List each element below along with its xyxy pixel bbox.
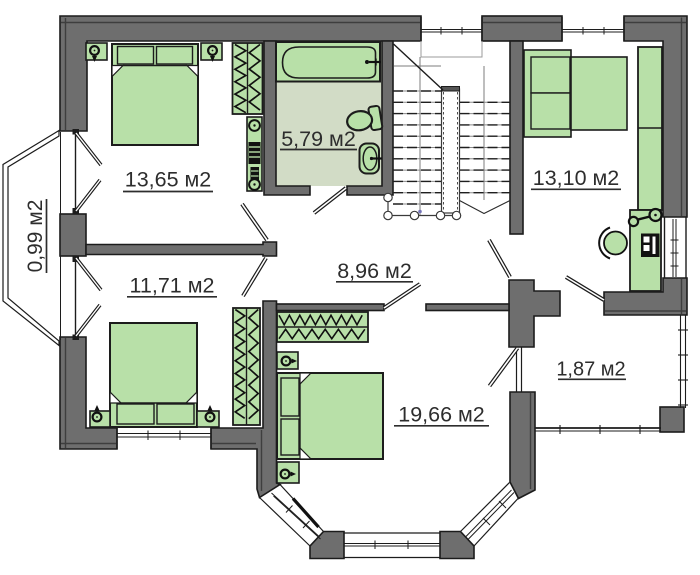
svg-text:8,96 м2: 8,96 м2 (337, 259, 412, 283)
svg-text:13,10 м2: 13,10 м2 (533, 166, 620, 190)
svg-text:5,79 м2: 5,79 м2 (281, 127, 356, 151)
svg-text:0,99 м2: 0,99 м2 (24, 200, 47, 273)
svg-text:11,71 м2: 11,71 м2 (130, 274, 215, 298)
svg-text:1,87 м2: 1,87 м2 (556, 359, 625, 381)
svg-text:13,65 м2: 13,65 м2 (125, 168, 212, 192)
svg-text:19,66 м2: 19,66 м2 (398, 403, 485, 427)
